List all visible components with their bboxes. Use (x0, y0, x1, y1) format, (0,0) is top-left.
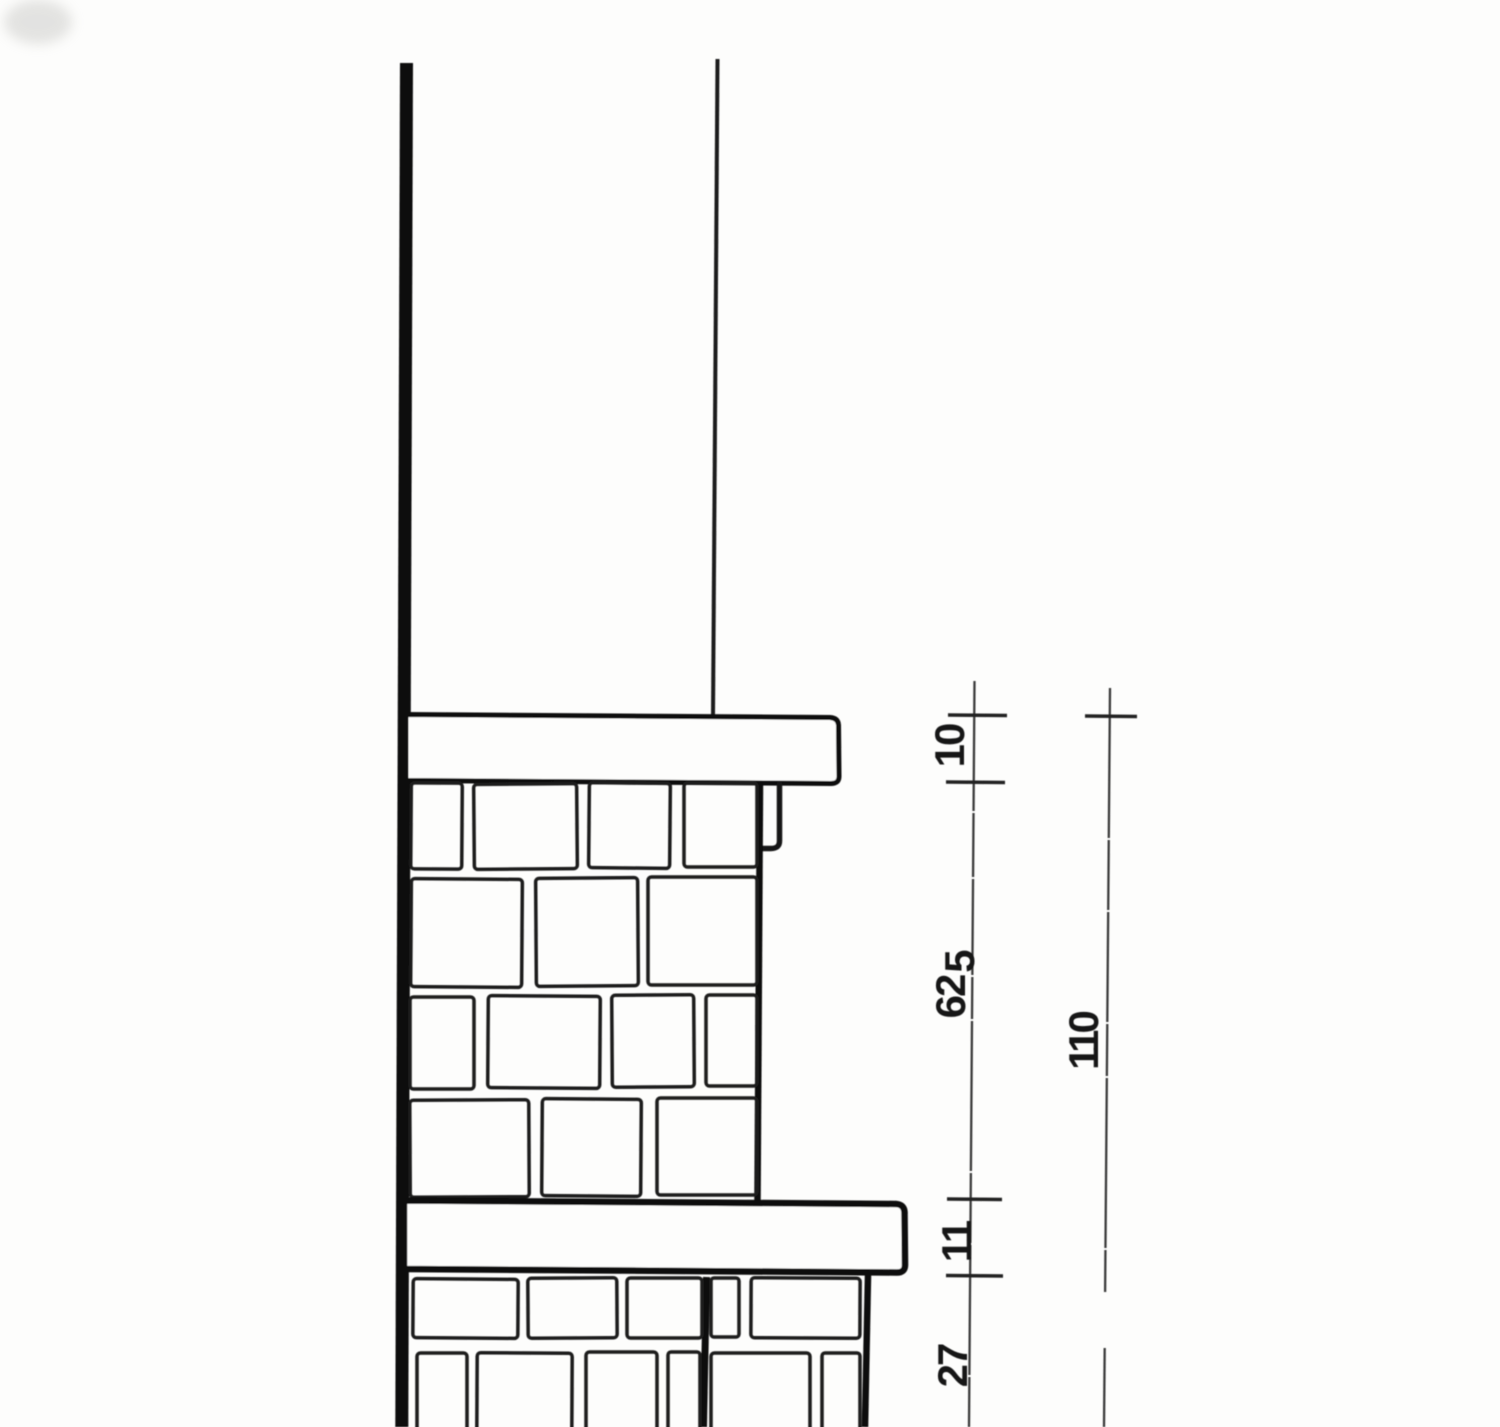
svg-text:5: 5 (936, 949, 983, 972)
svg-text:27: 27 (929, 1344, 976, 1387)
svg-text:10: 10 (926, 724, 973, 767)
svg-text:62: 62 (927, 975, 974, 1018)
svg-text:11: 11 (933, 1220, 980, 1262)
svg-text:110: 110 (1060, 1011, 1107, 1069)
